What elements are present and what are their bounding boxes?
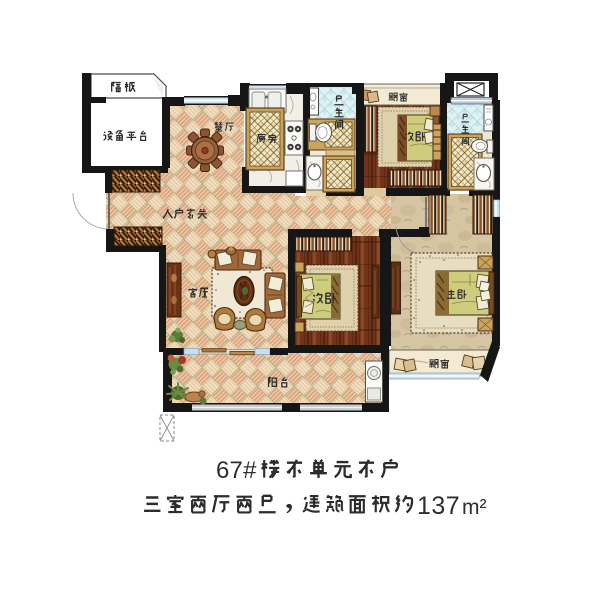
svg-text:m²: m² (462, 496, 487, 519)
svg-text:67#: 67# (216, 457, 257, 484)
svg-text:137: 137 (417, 492, 460, 520)
